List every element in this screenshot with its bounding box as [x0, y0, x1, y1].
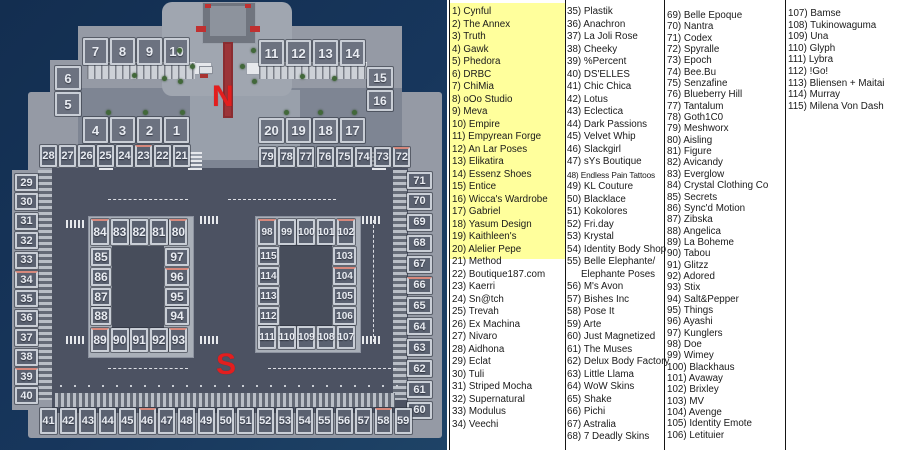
map-plot-57: 57 — [355, 408, 372, 434]
banner-icon — [250, 26, 260, 32]
directory-entry-52: 52) Fri.day — [567, 219, 669, 232]
directory-entry-84: 84) Crystal Clothing Co — [667, 180, 768, 191]
directory-entry-105: 105) Identity Emote — [667, 418, 768, 429]
map-plot-83: 83 — [111, 219, 129, 245]
map-plot-9: 9 — [137, 38, 162, 65]
map-plot-86: 86 — [91, 268, 111, 286]
directory-entry-40: 40) DS'ELLES — [567, 69, 669, 82]
map-plot-72: 72 — [393, 147, 410, 167]
directory-entry-19: 19) Kaithleen's — [452, 231, 548, 244]
map-plot-42: 42 — [60, 408, 77, 434]
directory-entry-87: 87) Zibska — [667, 214, 768, 225]
map-plot-16: 16 — [367, 90, 393, 111]
map-plot-61: 61 — [407, 381, 432, 398]
map-plot-84: 84 — [91, 219, 109, 245]
directory-entry-32: 32) Supernatural — [452, 394, 548, 407]
directory-entry-54: 54) Identity Body Shop — [567, 244, 669, 257]
directory-entry-104: 104) Avenge — [667, 407, 768, 418]
directory-entry-95: 95) Things — [667, 305, 768, 316]
directory-entry-53: 53) Krystal — [567, 231, 669, 244]
crosswalk — [362, 336, 380, 344]
map-plot-98: 98 — [258, 219, 276, 245]
directory-entry-68: 68) 7 Deadly Skins — [567, 431, 669, 444]
tree-icon — [177, 48, 182, 53]
map-plot-100: 100 — [297, 219, 315, 245]
directory-entry-20: 20) Alelier Pepe — [452, 244, 548, 257]
shops-facade-bottom — [55, 393, 395, 407]
directory-entry-55: 55) Belle Elephante/ — [567, 256, 669, 269]
directory-entry-63: 63) Little Llama — [567, 369, 669, 382]
directory-entry-80: 80) Aisling — [667, 135, 768, 146]
directory-entry-94: 94) Salt&Pepper — [667, 294, 768, 305]
directory-entry-59: 59) Arte — [567, 319, 669, 332]
map-plot-19: 19 — [286, 118, 311, 143]
directory-entry-91: 91) Glitzz — [667, 260, 768, 271]
map-plot-25: 25 — [97, 145, 114, 167]
lane-dashes — [268, 368, 396, 369]
directory-entry-89: 89) La Boheme — [667, 237, 768, 248]
directory-entry-45: 45) Velvet Whip — [567, 131, 669, 144]
map-plot-90: 90 — [111, 328, 129, 352]
directory-entry-14: 14) Essenz Shoes — [452, 169, 548, 182]
map-plot-113: 113 — [258, 287, 279, 305]
directory-column-1: 1) Cynful2) The Annex3) Truth4) Gawk5) P… — [452, 6, 548, 431]
directory-entry-18: 18) Yasum Design — [452, 219, 548, 232]
map-plot-101: 101 — [317, 219, 335, 245]
directory-entry-13: 13) Elikatira — [452, 156, 548, 169]
tree-icon — [132, 73, 137, 78]
directory-entry-100: 100) Blackhaus — [667, 362, 768, 373]
map-plot-13: 13 — [313, 40, 338, 66]
directory-entry-73: 73) Epoch — [667, 55, 768, 66]
map-plot-50: 50 — [217, 408, 234, 434]
directory-entry-43: 43) Eclectica — [567, 106, 669, 119]
map-plot-7: 7 — [83, 38, 108, 65]
map-plot-31: 31 — [15, 213, 38, 230]
map-plot-66: 66 — [407, 277, 432, 294]
directory-entry-65: 65) Shake — [567, 394, 669, 407]
map-plot-85: 85 — [91, 248, 111, 266]
map-plot-93: 93 — [169, 328, 187, 352]
tree-icon — [162, 76, 167, 81]
directory-entry-46: 46) Slackgirl — [567, 144, 669, 157]
street-dot-row — [60, 385, 400, 387]
map-plot-20: 20 — [259, 118, 284, 143]
tree-icon — [190, 64, 195, 69]
map-plot-89: 89 — [91, 328, 109, 352]
tree-icon — [252, 79, 257, 84]
directory-entry-8: 8) oOo Studio — [452, 94, 548, 107]
directory-entry-74: 74) Bee.Bu — [667, 67, 768, 78]
directory-entry-85: 85) Secrets — [667, 192, 768, 203]
directory-entry-7: 7) ChiMia — [452, 81, 548, 94]
directory-entry-24: 24) Sn@tch — [452, 294, 548, 307]
directory-entry-72: 72) Spyralle — [667, 44, 768, 55]
tree-icon — [143, 110, 148, 115]
map-plot-49: 49 — [198, 408, 215, 434]
flag-icon — [245, 4, 251, 8]
inner-courtyard-east — [280, 245, 332, 326]
map-plot-8: 8 — [110, 38, 135, 65]
map-plot-107: 107 — [337, 326, 355, 349]
tree-icon — [284, 110, 289, 115]
map-plot-53: 53 — [276, 408, 293, 434]
tree-icon — [180, 110, 185, 115]
map-plot-102: 102 — [337, 219, 355, 245]
directory-entry-78: 78) Goth1C0 — [667, 112, 768, 123]
directory-entry-36: 36) Anachron — [567, 19, 669, 32]
directory-entry-55-cont: Elephante Poses — [567, 269, 669, 282]
north-label: N — [212, 82, 234, 112]
map-plot-46: 46 — [139, 408, 156, 434]
directory-column-3: 69) Belle Epoque70) Nantra71) Codex72) S… — [667, 10, 768, 441]
map-plot-47: 47 — [158, 408, 175, 434]
directory-entry-11: 11) Empyrean Forge — [452, 131, 548, 144]
directory-entry-17: 17) Gabriel — [452, 206, 548, 219]
directory-entry-12: 12) An Lar Poses — [452, 144, 548, 157]
directory-entry-44: 44) Dark Passions — [567, 119, 669, 132]
tree-icon — [178, 79, 183, 84]
directory-entry-110: 110) Glyph — [788, 43, 884, 55]
directory-entry-1: 1) Cynful — [452, 6, 548, 19]
map-plot-41: 41 — [40, 408, 57, 434]
map-plot-1: 1 — [164, 117, 189, 143]
mall-map: 7891011121314651516432120191817282726252… — [0, 0, 447, 450]
directory-entry-62: 62) Delux Body Factory — [567, 356, 669, 369]
map-plot-87: 87 — [91, 288, 111, 306]
directory-entry-64: 64) WoW Skins — [567, 381, 669, 394]
map-plot-21: 21 — [173, 145, 190, 167]
map-plot-12: 12 — [286, 40, 311, 66]
directory-entry-66: 66) Pichi — [567, 406, 669, 419]
lane-dashes — [108, 368, 188, 369]
tree-icon — [318, 110, 323, 115]
map-plot-94: 94 — [165, 307, 189, 325]
map-plot-111: 111 — [258, 326, 276, 349]
map-plot-58: 58 — [375, 408, 392, 434]
directory-column-4: 107) Bamse108) Tukinowaguma109) Una110) … — [788, 8, 884, 112]
map-plot-109: 109 — [297, 326, 315, 349]
crosswalk — [66, 220, 84, 228]
map-plot-114: 114 — [258, 267, 279, 285]
map-plot-3: 3 — [110, 117, 135, 143]
directory-entry-92: 92) Adored — [667, 271, 768, 282]
directory-entry-22: 22) Boutique187.com — [452, 269, 548, 282]
entrance-gate-roof — [210, 6, 246, 36]
directory-entry-86: 86) Sync'd Motion — [667, 203, 768, 214]
directory-entry-98: 98) Doe — [667, 339, 768, 350]
directory-entry-93: 93) Stix — [667, 282, 768, 293]
map-plot-65: 65 — [407, 297, 432, 314]
directory-entry-33: 33) Modulus — [452, 406, 548, 419]
map-plot-91: 91 — [130, 328, 148, 352]
map-plot-74: 74 — [355, 147, 372, 167]
directory-entry-56: 56) M's Avon — [567, 281, 669, 294]
directory-entry-90: 90) Tabou — [667, 248, 768, 259]
directory-column-2: 35) Plastik36) Anachron37) La Joli Rose3… — [567, 6, 669, 444]
directory-entry-112: 112) !Go! — [788, 66, 884, 78]
directory-entry-77: 77) Tantalum — [667, 101, 768, 112]
map-plot-108: 108 — [317, 326, 335, 349]
map-plot-40: 40 — [15, 387, 38, 404]
map-plot-37: 37 — [15, 329, 38, 346]
directory-entry-88: 88) Angelica — [667, 226, 768, 237]
directory-entry-3: 3) Truth — [452, 31, 548, 44]
directory-entry-109: 109) Una — [788, 31, 884, 43]
map-plot-17: 17 — [340, 118, 365, 143]
map-plot-26: 26 — [78, 145, 95, 167]
map-plot-28: 28 — [40, 145, 57, 167]
map-plot-34: 34 — [15, 271, 38, 288]
map-plot-69: 69 — [407, 214, 432, 231]
directory-entry-31: 31) Striped Mocha — [452, 381, 548, 394]
map-plot-24: 24 — [116, 145, 133, 167]
column-divider — [449, 0, 450, 450]
directory-entry-2: 2) The Annex — [452, 19, 548, 32]
crosswalk — [200, 336, 218, 344]
map-plot-77: 77 — [297, 147, 314, 167]
lane-dashes — [228, 199, 336, 200]
map-plot-106: 106 — [333, 307, 356, 325]
directory-entry-25: 25) Trevah — [452, 306, 548, 319]
mall-map-board: 7891011121314651516432120191817282726252… — [0, 0, 900, 450]
directory-entry-47: 47) sYs Boutique — [567, 156, 669, 169]
directory-entry-5: 5) Phedora — [452, 56, 548, 69]
map-plot-76: 76 — [317, 147, 334, 167]
map-plot-112: 112 — [258, 307, 279, 325]
map-plot-29: 29 — [15, 174, 38, 191]
banner-icon — [196, 26, 206, 32]
directory-entry-29: 29) Eclat — [452, 356, 548, 369]
directory-entry-111: 111) Lybra — [788, 54, 884, 66]
directory-entry-115: 115) Milena Von Dash — [788, 101, 884, 113]
map-plot-103: 103 — [333, 247, 356, 265]
column-divider — [565, 0, 566, 450]
directory-entry-106: 106) Letituier — [667, 430, 768, 441]
crosswalk — [362, 216, 380, 224]
tree-icon — [352, 110, 357, 115]
map-plot-88: 88 — [91, 307, 111, 325]
map-plot-36: 36 — [15, 310, 38, 327]
inner-courtyard-west — [112, 246, 164, 328]
map-plot-18: 18 — [313, 118, 338, 143]
directory-entry-26: 26) Ex Machina — [452, 319, 548, 332]
map-plot-62: 62 — [407, 360, 432, 377]
directory-entry-34: 34) Veechi — [452, 419, 548, 432]
map-plot-54: 54 — [296, 408, 313, 434]
map-plot-82: 82 — [130, 219, 148, 245]
map-plot-104: 104 — [333, 267, 356, 285]
map-plot-105: 105 — [333, 287, 356, 305]
directory-entry-71: 71) Codex — [667, 33, 768, 44]
map-plot-55: 55 — [316, 408, 333, 434]
directory-entry-23: 23) Kaerri — [452, 281, 548, 294]
directory-entry-75: 75) Senzafine — [667, 78, 768, 89]
map-plot-59: 59 — [395, 408, 412, 434]
directory-entry-107: 107) Bamse — [788, 8, 884, 20]
crosswalk — [200, 216, 218, 224]
directory-entry-103: 103) MV — [667, 396, 768, 407]
directory-entry-49: 49) KL Couture — [567, 181, 669, 194]
lane-dashes-vertical — [373, 220, 374, 342]
map-plot-95: 95 — [165, 288, 189, 306]
directory-entry-6: 6) DRBC — [452, 69, 548, 82]
map-plot-52: 52 — [257, 408, 274, 434]
map-plot-44: 44 — [99, 408, 116, 434]
directory-entry-61: 61) The Muses — [567, 344, 669, 357]
tree-icon — [300, 74, 305, 79]
map-plot-99: 99 — [278, 219, 296, 245]
directory-entry-70: 70) Nantra — [667, 21, 768, 32]
directory-entry-69: 69) Belle Epoque — [667, 10, 768, 21]
directory-entry-39: 39) %Percent — [567, 56, 669, 69]
directory-entry-41: 41) Chic Chica — [567, 81, 669, 94]
map-plot-51: 51 — [237, 408, 254, 434]
directory-entry-10: 10) Empire — [452, 119, 548, 132]
map-plot-63: 63 — [407, 339, 432, 356]
map-plot-70: 70 — [407, 193, 432, 210]
bus — [199, 66, 213, 74]
map-plot-48: 48 — [178, 408, 195, 434]
flag-icon — [205, 4, 211, 8]
map-plot-35: 35 — [15, 290, 38, 307]
map-plot-67: 67 — [407, 256, 432, 273]
store-directory: 1) Cynful2) The Annex3) Truth4) Gawk5) P… — [447, 0, 900, 450]
directory-entry-28: 28) Aidhona — [452, 344, 548, 357]
directory-entry-9: 9) Meva — [452, 106, 548, 119]
tree-icon — [332, 76, 337, 81]
map-plot-81: 81 — [150, 219, 168, 245]
directory-entry-48: 48) Endless Pain Tattoos — [567, 169, 669, 182]
column-divider — [785, 0, 786, 450]
directory-entry-37: 37) La Joli Rose — [567, 31, 669, 44]
shops-facade-right — [393, 170, 407, 400]
map-plot-6: 6 — [55, 66, 81, 90]
red-car — [200, 74, 208, 78]
directory-entry-79: 79) Meshworx — [667, 123, 768, 134]
tree-icon — [106, 110, 111, 115]
map-plot-96: 96 — [165, 268, 189, 286]
crosswalk — [188, 152, 202, 170]
map-plot-78: 78 — [278, 147, 295, 167]
map-plot-71: 71 — [407, 172, 432, 189]
directory-entry-102: 102) Brixley — [667, 384, 768, 395]
directory-entry-30: 30) Tuli — [452, 369, 548, 382]
map-plot-43: 43 — [79, 408, 96, 434]
directory-entry-82: 82) Avicandy — [667, 157, 768, 168]
map-plot-33: 33 — [15, 252, 38, 269]
directory-entry-108: 108) Tukinowaguma — [788, 20, 884, 32]
directory-entry-51: 51) Kokolores — [567, 206, 669, 219]
map-plot-38: 38 — [15, 349, 38, 366]
tree-icon — [240, 64, 245, 69]
directory-entry-76: 76) Blueberry Hill — [667, 89, 768, 100]
directory-entry-57: 57) Bishes Inc — [567, 294, 669, 307]
shops-facade-left — [38, 170, 52, 400]
map-plot-79: 79 — [259, 147, 276, 167]
map-plot-11: 11 — [259, 40, 284, 66]
map-plot-92: 92 — [150, 328, 168, 352]
directory-entry-27: 27) Nivaro — [452, 331, 548, 344]
crosswalk — [66, 336, 84, 344]
map-plot-45: 45 — [119, 408, 136, 434]
map-plot-4: 4 — [83, 117, 108, 143]
directory-entry-21: 21) Method — [452, 256, 548, 269]
directory-entry-50: 50) Blacklace — [567, 194, 669, 207]
directory-entry-15: 15) Entice — [452, 181, 548, 194]
map-plot-110: 110 — [278, 326, 296, 349]
directory-entry-99: 99) Wimey — [667, 350, 768, 361]
map-plot-80: 80 — [169, 219, 187, 245]
map-plot-30: 30 — [15, 193, 38, 210]
directory-entry-35: 35) Plastik — [567, 6, 669, 19]
map-plot-32: 32 — [15, 232, 38, 249]
map-plot-64: 64 — [407, 318, 432, 335]
map-plot-2: 2 — [137, 117, 162, 143]
directory-entry-16: 16) Wicca's Wardrobe — [452, 194, 548, 207]
map-plot-27: 27 — [59, 145, 76, 167]
map-plot-97: 97 — [165, 248, 189, 266]
tree-icon — [251, 48, 256, 53]
directory-entry-42: 42) Lotus — [567, 94, 669, 107]
directory-entry-101: 101) Avaway — [667, 373, 768, 384]
map-plot-68: 68 — [407, 235, 432, 252]
directory-entry-81: 81) Figure — [667, 146, 768, 157]
south-label: S — [216, 350, 236, 380]
map-plot-75: 75 — [336, 147, 353, 167]
map-plot-73: 73 — [374, 147, 391, 167]
directory-entry-67: 67) Astralia — [567, 419, 669, 432]
map-plot-14: 14 — [340, 40, 365, 66]
map-plot-5: 5 — [55, 92, 81, 116]
map-plot-23: 23 — [135, 145, 152, 167]
directory-entry-83: 83) Everglow — [667, 169, 768, 180]
map-plot-22: 22 — [154, 145, 171, 167]
directory-entry-113: 113) Bliensen + Maitai — [788, 78, 884, 90]
directory-entry-97: 97) Kunglers — [667, 328, 768, 339]
directory-entry-4: 4) Gawk — [452, 44, 548, 57]
directory-entry-58: 58) Pose It — [567, 306, 669, 319]
directory-entry-60: 60) Just Magnetized — [567, 331, 669, 344]
directory-entry-38: 38) Cheeky — [567, 44, 669, 57]
map-plot-15: 15 — [367, 67, 393, 88]
directory-entry-114: 114) Murray — [788, 89, 884, 101]
directory-entry-96: 96) Ayashi — [667, 316, 768, 327]
lane-dashes — [108, 199, 188, 200]
map-plot-39: 39 — [15, 368, 38, 385]
map-plot-115: 115 — [258, 247, 279, 265]
map-plot-56: 56 — [336, 408, 353, 434]
